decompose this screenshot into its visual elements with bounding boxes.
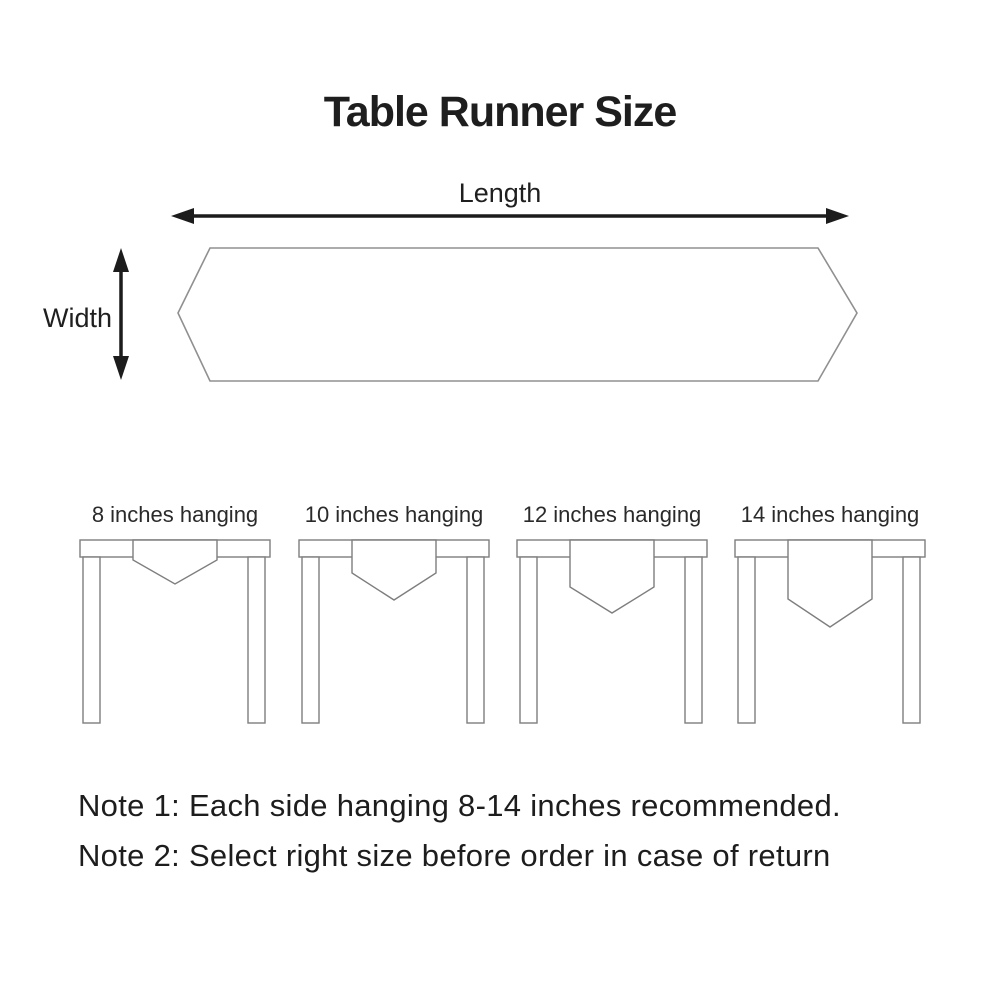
table-leg-left (302, 557, 319, 723)
table-drawing-8in (75, 535, 275, 727)
table-drawing-14in (730, 535, 930, 727)
table-leg-left (738, 557, 755, 723)
note-1: Note 1: Each side hanging 8-14 inches re… (78, 788, 958, 824)
table-leg-left (520, 557, 537, 723)
table-figure-10in: 10 inches hanging (294, 502, 494, 742)
table-leg-right (903, 557, 920, 723)
note-2: Note 2: Select right size before order i… (78, 838, 958, 874)
runner-shape (178, 248, 857, 381)
runner-drop (788, 540, 872, 627)
table-drawing-12in (512, 535, 712, 727)
length-arrow (171, 208, 849, 224)
table-drawing-10in (294, 535, 494, 727)
runner-drop (570, 540, 654, 613)
table-leg-left (83, 557, 100, 723)
arrowhead-left-icon (171, 208, 194, 224)
width-arrow (113, 248, 129, 380)
runner-dimensions-diagram (0, 160, 1000, 405)
page-title: Table Runner Size (0, 88, 1000, 137)
table-leg-right (685, 557, 702, 723)
table-leg-right (467, 557, 484, 723)
table-figure-12in: 12 inches hanging (512, 502, 712, 742)
table-figure-14in: 14 inches hanging (730, 502, 930, 742)
arrowhead-down-icon (113, 356, 129, 380)
hanging-label: 12 inches hanging (497, 502, 727, 528)
arrowhead-right-icon (826, 208, 849, 224)
table-figure-8in: 8 inches hanging (75, 502, 275, 742)
table-leg-right (248, 557, 265, 723)
arrowhead-up-icon (113, 248, 129, 272)
hanging-label: 10 inches hanging (279, 502, 509, 528)
size-chart-page: Table Runner Size Length Width 8 inches … (0, 0, 1000, 1000)
hanging-label: 14 inches hanging (715, 502, 945, 528)
hanging-label: 8 inches hanging (60, 502, 290, 528)
runner-drop (352, 540, 436, 600)
runner-drop (133, 540, 217, 584)
notes-section: Note 1: Each side hanging 8-14 inches re… (78, 788, 958, 888)
